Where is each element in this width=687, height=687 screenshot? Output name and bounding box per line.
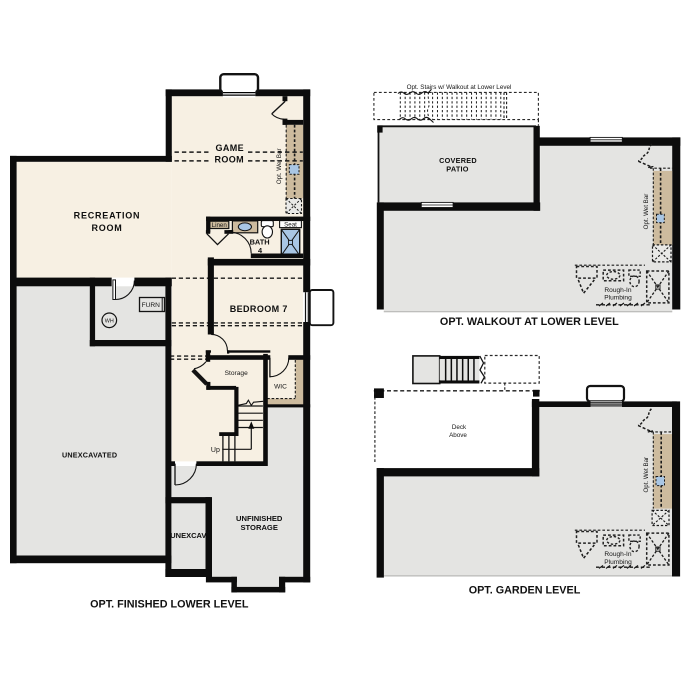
svg-text:Opt. Stairs w/ Walkout at Lowe: Opt. Stairs w/ Walkout at Lower Level	[407, 84, 512, 91]
svg-text:Opt. Wet Bar: Opt. Wet Bar	[276, 148, 283, 184]
svg-text:GAME: GAME	[215, 143, 244, 153]
svg-text:UNEXCAVATED: UNEXCAVATED	[62, 451, 117, 460]
svg-text:UNEXCAV: UNEXCAV	[170, 531, 206, 540]
svg-text:Up: Up	[211, 447, 220, 454]
svg-text:Seat: Seat	[284, 221, 297, 228]
svg-text:ROOM: ROOM	[91, 223, 122, 233]
svg-text:Plumbing: Plumbing	[604, 559, 632, 566]
svg-text:ROOM: ROOM	[214, 154, 244, 164]
svg-text:UNFINISHED: UNFINISHED	[236, 514, 283, 523]
svg-text:Storage: Storage	[225, 370, 248, 377]
svg-text:BATH: BATH	[250, 237, 270, 246]
svg-text:Plumbing: Plumbing	[604, 295, 632, 302]
svg-text:Rough-In: Rough-In	[604, 551, 631, 558]
svg-text:Linen: Linen	[212, 222, 228, 229]
svg-text:OPT. GARDEN LEVEL: OPT. GARDEN LEVEL	[469, 585, 581, 597]
svg-text:OPT. WALKOUT AT LOWER LEVEL: OPT. WALKOUT AT LOWER LEVEL	[440, 316, 619, 328]
svg-text:WIC: WIC	[274, 383, 287, 390]
svg-text:BEDROOM 7: BEDROOM 7	[230, 304, 288, 314]
svg-text:PATIO: PATIO	[446, 165, 469, 174]
svg-text:Rough-In: Rough-In	[604, 287, 631, 294]
svg-text:Deck: Deck	[452, 424, 467, 431]
svg-text:WH: WH	[105, 318, 114, 324]
svg-text:Above: Above	[449, 432, 467, 439]
svg-text:STORAGE: STORAGE	[240, 523, 277, 532]
svg-text:RECREATION: RECREATION	[74, 211, 141, 221]
svg-text:Opt. Wet Bar: Opt. Wet Bar	[643, 194, 650, 230]
svg-text:Opt. Wet Bar: Opt. Wet Bar	[643, 457, 650, 493]
svg-text:OPT. FINISHED LOWER LEVEL: OPT. FINISHED LOWER LEVEL	[90, 598, 249, 610]
svg-text:FURN: FURN	[142, 302, 161, 309]
svg-text:COVERED: COVERED	[439, 156, 477, 165]
